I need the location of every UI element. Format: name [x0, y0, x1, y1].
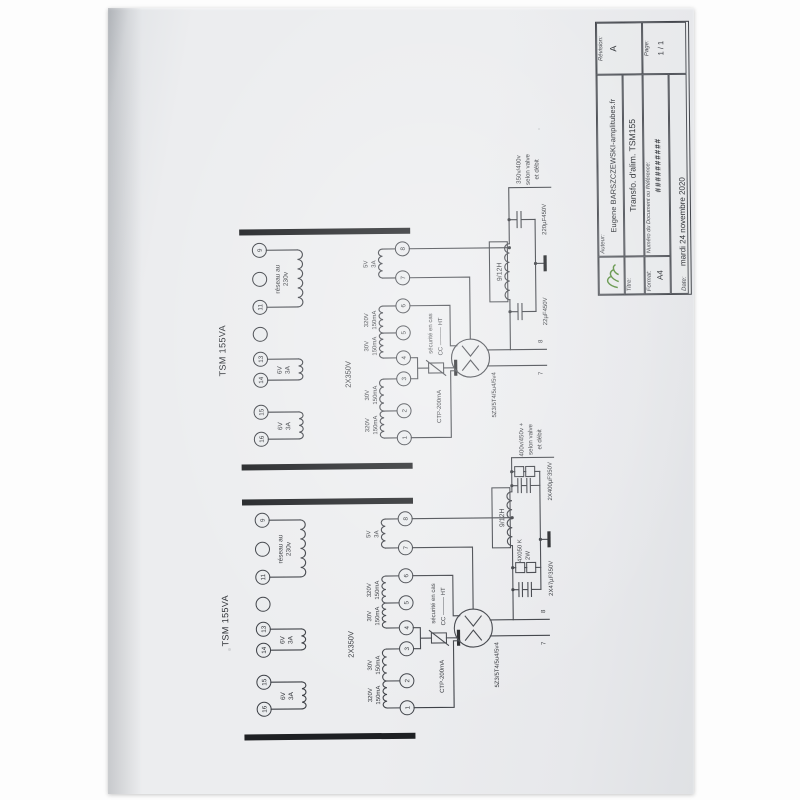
cap-bank2-label: 2X400µF350V [548, 462, 554, 501]
terminal-number: 9 [260, 518, 267, 522]
psu-circuit-2: TSM 155VA 16151413119 6V 3A 6V 3A réseau… [199, 419, 597, 743]
docnum-value: ########## [653, 77, 664, 253]
terminal-number: 6 [403, 574, 410, 578]
terminal-circle [396, 326, 410, 340]
terminal-circle [252, 243, 266, 257]
revision-cell: Révision: A [596, 22, 643, 74]
terminal-circle [399, 621, 413, 635]
author-cell: Auteur: Eugene BARSZCZEWSKI-amplitubes.f… [597, 75, 625, 257]
tube-pin-stubs [490, 619, 549, 636]
ctp-label: CTP-200mA [440, 660, 446, 693]
output-voltage-label: 400v/450v + [518, 422, 525, 456]
bleeder-label: 2W [526, 551, 532, 560]
transformer-1: TSM 155VA 16151413119 6V 3A 6V 3A réseau… [216, 228, 413, 471]
format-label: Format: [646, 259, 652, 291]
terminal-circle [257, 702, 271, 716]
secondary-coil [380, 379, 385, 411]
primary-stubs [269, 520, 302, 709]
terminal-number: 14 [261, 646, 268, 654]
choke-label: 9/12H [499, 508, 506, 527]
cap-bank1-label: 2X47µF350V [549, 561, 555, 596]
pin8-label: 8 [538, 339, 544, 343]
heater-wires [412, 518, 513, 610]
terminal-number: 15 [258, 408, 265, 416]
tube-type-label: 5Z3/5T4/5u4/5v4 [494, 641, 500, 687]
terminal-circle [253, 272, 267, 286]
bleeder-resistor [515, 467, 524, 477]
terminal-number: 4 [404, 626, 411, 630]
terminal-circle [400, 674, 414, 688]
tube-envelope [451, 339, 489, 377]
winding-label: 320V [368, 688, 374, 702]
ground-bus [535, 219, 544, 311]
ht-label: 2X350V [346, 631, 355, 658]
secondary-coil [382, 603, 386, 628]
terminal-number: 8 [400, 247, 407, 251]
primary-coil [300, 520, 306, 577]
terminal-circle [397, 372, 411, 386]
choke-coil [507, 492, 513, 546]
winding-label: 6V [277, 421, 284, 430]
winding-label: 150mA [373, 386, 379, 405]
bleeder-resistor [516, 563, 525, 573]
ctp-strike [429, 630, 456, 645]
terminal-circle [254, 405, 268, 419]
rotated-schematic-canvas: TSM 155VA 16151413119 6V 3A 6V 3A réseau… [193, 20, 701, 745]
ctp-thermistor [431, 633, 446, 643]
tube-type-label: 5Z3/5T4/5u4/5v4 [492, 371, 498, 417]
winding-label: 150mA [372, 311, 378, 330]
secondary-coil [382, 576, 386, 603]
docnum-cell: Numéro du Document ou Référence: #######… [643, 74, 671, 256]
winding-label: 150mA [376, 656, 382, 675]
winding-label: 3A [285, 365, 292, 374]
terminal-circle [255, 513, 269, 527]
terminal-circle [255, 542, 269, 556]
terminal-number: 1 [402, 436, 409, 440]
plate-wires [413, 575, 461, 707]
docnum-label: Numéro du Document ou Référence: [645, 77, 653, 253]
choke-box [492, 488, 511, 548]
scan-speck [228, 648, 231, 651]
output-voltage-label: selon valve [527, 423, 534, 455]
ht-label: 2X350V [344, 361, 353, 388]
cap2-label: 220µF450V [542, 204, 548, 235]
terminal-number: 15 [261, 678, 268, 686]
secondary-coil [379, 306, 383, 333]
pin7-label: 7 [541, 641, 547, 645]
primary-coil [299, 412, 303, 439]
winding-label: 150mA [372, 337, 378, 356]
terminal-number: 1 [405, 706, 412, 710]
tube-plates [465, 616, 481, 640]
terminal-number: 3 [404, 647, 411, 651]
ctp-label: CTP-200mA [437, 390, 443, 423]
transformer-name: TSM 155VA [217, 325, 228, 377]
primary-coil [297, 250, 303, 307]
pin7-label: 7 [539, 371, 545, 375]
secondary-stubs [382, 249, 397, 438]
terminal-number: 5 [401, 331, 408, 335]
terminal-circle [254, 373, 268, 387]
plate-wires [410, 305, 458, 437]
filter-cap-2 [509, 211, 535, 227]
terminal-number: 11 [257, 304, 264, 311]
winding-label: 6V [277, 365, 284, 374]
security-label: CC ——— HT [441, 587, 447, 625]
core-bar-right [242, 498, 413, 506]
terminal-number: 5 [403, 601, 410, 605]
winding-label: réseau au [275, 264, 282, 293]
terminal-circle [398, 541, 412, 555]
terminal-circle [253, 327, 267, 341]
terminal-circle [396, 299, 410, 313]
winding-label: 320V [367, 583, 373, 597]
filter-1: 9/12H 22µF450V 220µF450V 350v/400v selon… [485, 153, 552, 350]
filter-2: 9/12H 4X050 K 2W 2X47µF350V 2X400µF350V [488, 422, 555, 620]
terminal-number: 8 [403, 517, 410, 521]
page-cell: Page: 1 / 1 [642, 22, 687, 74]
terminal-circle [396, 351, 410, 365]
terminal-circle [399, 642, 413, 656]
choke-box [489, 242, 508, 302]
winding-label: 320V [365, 418, 371, 432]
output-voltage-label: et débit [536, 429, 543, 450]
terminal-circle [399, 569, 413, 583]
winding-label: 320V [364, 313, 370, 327]
title-value-cell: Transfo. d'alim. TSM155 [623, 74, 645, 256]
heater-wires [409, 248, 510, 340]
winding-label: 150mA [375, 581, 381, 600]
rectifier-tube-1: 7 8 5Z3/5T4/5u4/5v4 [409, 247, 547, 437]
bleeder-resistor [527, 562, 536, 572]
terminal-number: 16 [259, 435, 266, 443]
winding-label: 3A [371, 260, 377, 267]
center-tap-wire [413, 628, 431, 649]
secondary-coil [379, 333, 383, 358]
author-label: Auteur: [599, 78, 607, 254]
primary-coil [299, 359, 303, 380]
secondary-stubs [385, 519, 400, 708]
bleeder-resistor [526, 466, 535, 476]
winding-label: 30V [365, 390, 371, 401]
core-bar-left [244, 733, 415, 741]
terminal-circle [257, 675, 271, 689]
ctp-thermistor [429, 363, 444, 373]
terminal-number: 13 [261, 625, 268, 633]
winding-label: réseau au [277, 534, 284, 563]
security-label: sécurité en cas [428, 313, 434, 353]
terminal-circle [256, 570, 270, 584]
winding-label: 230v [283, 271, 290, 286]
filter-cap-1 [510, 303, 536, 319]
primary-coil [301, 629, 305, 650]
winding-label: 5V [363, 260, 369, 267]
terminal-circle [399, 596, 413, 610]
title-block-logo-cell [598, 256, 624, 294]
document-title: Transfo. d'alim. TSM155 [627, 77, 639, 253]
security-label: CC ——— HT [438, 317, 444, 355]
page-value: 1 / 1 [656, 25, 665, 71]
output-voltage-label: selon valve [524, 153, 531, 185]
schematic-paper: TSM 155VA 16151413119 6V 3A 6V 3A réseau… [108, 8, 694, 794]
winding-label: 6V [280, 691, 287, 700]
primary-stubs [266, 250, 299, 439]
terminal-circle [398, 512, 412, 526]
winding-label: 3A [374, 530, 380, 537]
revision-value: A [608, 26, 618, 72]
primary-terminal-row: 16151413119 [255, 513, 271, 716]
terminal-circle [256, 643, 270, 657]
pin8-label: 8 [541, 609, 547, 613]
terminal-number: 6 [400, 304, 407, 308]
terminal-number: 7 [400, 276, 407, 280]
center-tap-protection-2: CTP-200mA sécurité en cas CC ——— HT [413, 583, 461, 693]
terminal-circle [397, 431, 411, 445]
ground-symbol [543, 255, 546, 271]
winding-label: 30V [367, 611, 373, 622]
ground-symbol [457, 630, 460, 646]
dessinateur-logo-icon [600, 260, 622, 292]
choke-label: 9/12H [497, 262, 504, 281]
terminal-number: 2 [404, 679, 411, 683]
choke-coil [505, 244, 510, 300]
page-label: Page: [644, 25, 650, 71]
cap-bank2 [512, 478, 540, 492]
terminal-number: 9 [257, 248, 264, 252]
terminal-circle [253, 300, 267, 314]
ground-bus [540, 471, 548, 589]
title-label: Titre: [626, 259, 632, 291]
date-value: mardi 24 novembre 2020 [678, 177, 688, 266]
terminal-number: 16 [262, 705, 269, 713]
terminal-circle [253, 352, 267, 366]
primary-terminal-row: 16151413119 [252, 243, 268, 446]
winding-label: 5V [366, 530, 372, 537]
terminal-circle [397, 404, 411, 418]
terminal-circle [256, 622, 270, 636]
terminal-number: 3 [401, 377, 408, 381]
winding-label: 30V [368, 660, 374, 671]
terminal-circle [396, 271, 410, 285]
ground-symbol [547, 531, 550, 547]
output-voltage-label: 350v/400v [515, 154, 522, 184]
secondary-coil [383, 681, 387, 708]
secondary-coil [378, 249, 382, 278]
date-label: Date: [682, 276, 688, 290]
winding-label: 3A [288, 691, 295, 700]
winding-label: 3A [285, 421, 292, 430]
format-cell: Format: A4 [644, 256, 670, 294]
transformer-2: TSM 155VA 16151413119 6V 3A 6V 3A réseau… [219, 498, 416, 741]
terminal-number: 7 [403, 546, 410, 550]
tube-envelope [454, 609, 492, 647]
center-tap-wire [410, 358, 428, 379]
ht-rail [489, 457, 556, 620]
secondary-terminal-row: 12345678 [395, 242, 411, 445]
terminal-circle [256, 597, 270, 611]
revision-label: Révision: [598, 26, 604, 72]
winding-label: 30V [364, 341, 370, 352]
winding-label: 150mA [376, 686, 382, 705]
cap-bank1 [513, 582, 541, 596]
title-block: Auteur: Eugene BARSZCZEWSKI-amplitubes.f… [595, 21, 692, 296]
tube-pin-stubs [487, 349, 546, 366]
secondary-coil [381, 519, 385, 548]
center-tap-protection-1: CTP-200mA sécurité en cas CC ——— HT [410, 313, 458, 423]
author-value: Eugene BARSZCZEWSKI-amplitubes.fr [608, 78, 619, 254]
core-bar-right [239, 228, 410, 236]
terminal-number: 13 [258, 355, 265, 363]
date-cell: Date: mardi 24 novembre 2020 [669, 74, 689, 294]
terminal-circle [254, 432, 268, 446]
security-label: sécurité en cas [431, 583, 437, 623]
output-voltage-label: et débit [533, 159, 540, 180]
ground-symbol [454, 360, 457, 376]
terminal-number: 14 [258, 376, 265, 384]
terminal-number: 2 [401, 409, 408, 413]
bleeder-label: 4X050 K [517, 539, 523, 562]
terminal-number: 4 [401, 356, 408, 360]
winding-label: 150mA [373, 416, 379, 435]
winding-label: 230v [285, 541, 292, 556]
terminal-number: 11 [260, 573, 267, 580]
scan-speck [538, 128, 540, 130]
core-bar-left [242, 463, 413, 471]
winding-label: 150mA [375, 607, 381, 626]
secondary-coil [382, 649, 387, 681]
rectifier-tube-2: 7 8 5Z3/5T4/5u4/5v4 [412, 517, 550, 707]
title-label-cell: Titre: [624, 256, 644, 294]
cap1-label: 22µF450V [543, 297, 549, 325]
terminal-circle [395, 242, 409, 256]
transformer-name: TSM 155VA [220, 595, 231, 647]
format-value: A4 [655, 259, 664, 291]
scanned-photo: TSM 155VA 16151413119 6V 3A 6V 3A réseau… [0, 0, 800, 800]
secondary-coil [380, 411, 384, 438]
tube-plates [462, 346, 478, 370]
psu-circuit-1: TSM 155VA 16151413119 6V 3A 6V 3A réseau… [196, 149, 594, 473]
primary-coil [302, 682, 306, 709]
terminal-circle [400, 701, 414, 715]
ctp-strike [427, 360, 454, 375]
secondary-terminal-row: 12345678 [398, 512, 414, 715]
winding-label: 3A [287, 635, 294, 644]
winding-label: 6V [279, 635, 286, 644]
ht-rail [486, 187, 553, 350]
